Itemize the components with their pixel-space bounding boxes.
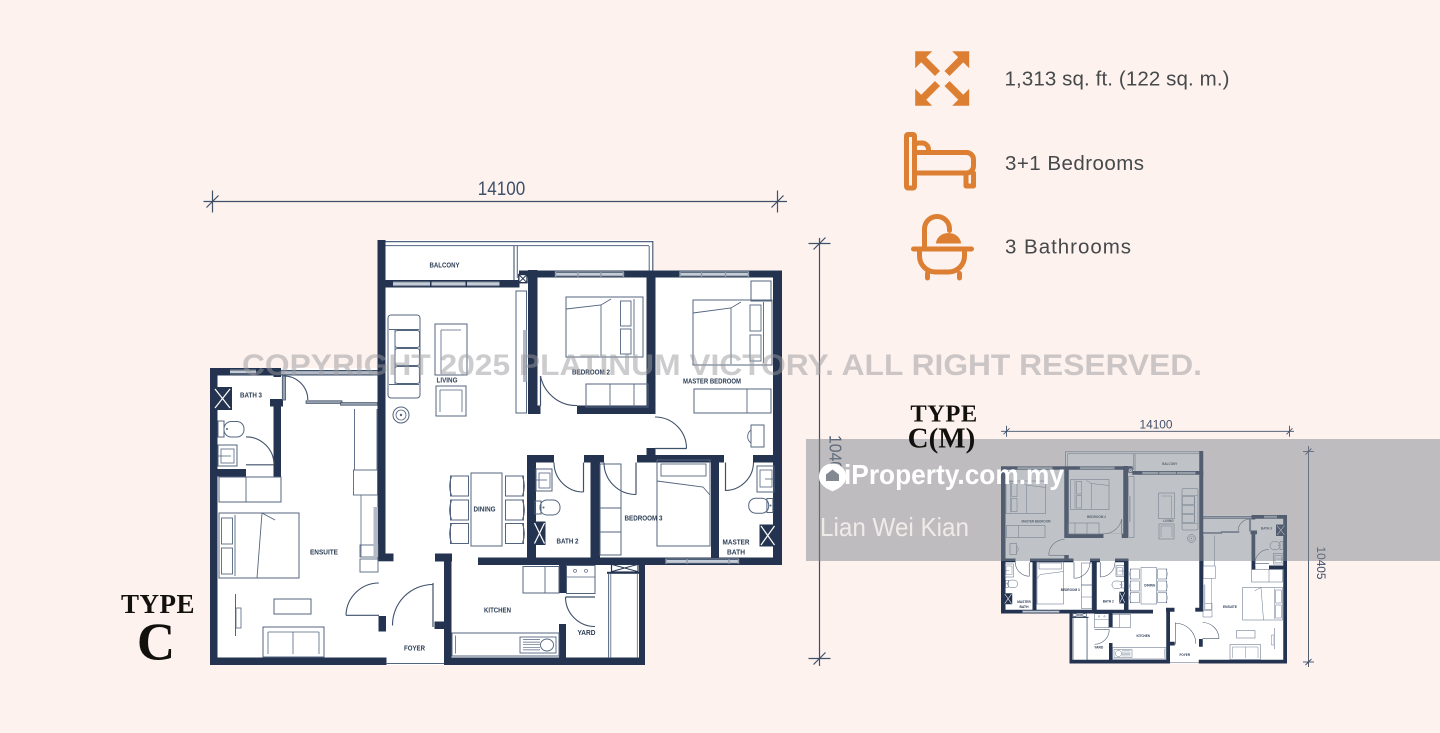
svg-text:BATH: BATH: [1020, 605, 1029, 609]
svg-text:MASTER: MASTER: [723, 538, 750, 547]
svg-text:BEDROOM 3: BEDROOM 3: [1061, 588, 1080, 592]
svg-text:COPYRIGHT 2025 PLATINUM VICTOR: COPYRIGHT 2025 PLATINUM VICTORY. ALL RIG…: [242, 349, 1202, 382]
svg-text:3 Bathrooms: 3 Bathrooms: [1005, 235, 1131, 258]
svg-text:Lian Wei Kian: Lian Wei Kian: [820, 512, 969, 542]
svg-text:YARD: YARD: [1094, 645, 1103, 649]
svg-text:C(M): C(M): [908, 423, 976, 455]
svg-text:KITCHEN: KITCHEN: [484, 605, 511, 614]
svg-text:YARD: YARD: [578, 628, 596, 637]
svg-text:BATH 3: BATH 3: [240, 391, 262, 400]
svg-text:FOYER: FOYER: [1180, 653, 1191, 657]
svg-text:3+1 Bedrooms: 3+1 Bedrooms: [1005, 152, 1144, 175]
svg-text:KITCHEN: KITCHEN: [1136, 634, 1150, 638]
svg-text:MASTER: MASTER: [1017, 600, 1031, 604]
svg-text:BATH 2: BATH 2: [1103, 600, 1114, 604]
svg-text:ENSUITE: ENSUITE: [310, 547, 338, 556]
svg-text:iProperty.com.my: iProperty.com.my: [844, 459, 1064, 490]
svg-text:FOYER: FOYER: [404, 643, 425, 652]
svg-text:DINING: DINING: [1144, 584, 1155, 588]
svg-text:BATH: BATH: [727, 548, 745, 557]
svg-text:BALCONY: BALCONY: [430, 261, 460, 270]
svg-text:14100: 14100: [478, 178, 526, 200]
svg-text:BATH 2: BATH 2: [557, 536, 579, 545]
svg-text:DINING: DINING: [474, 504, 496, 513]
svg-text:C: C: [137, 614, 175, 672]
svg-text:1,313 sq. ft. (122 sq. m.): 1,313 sq. ft. (122 sq. m.): [1005, 68, 1230, 91]
svg-text:ENSUITE: ENSUITE: [1223, 605, 1237, 609]
svg-text:14100: 14100: [1140, 420, 1173, 432]
svg-text:BEDROOM 3: BEDROOM 3: [625, 513, 663, 522]
